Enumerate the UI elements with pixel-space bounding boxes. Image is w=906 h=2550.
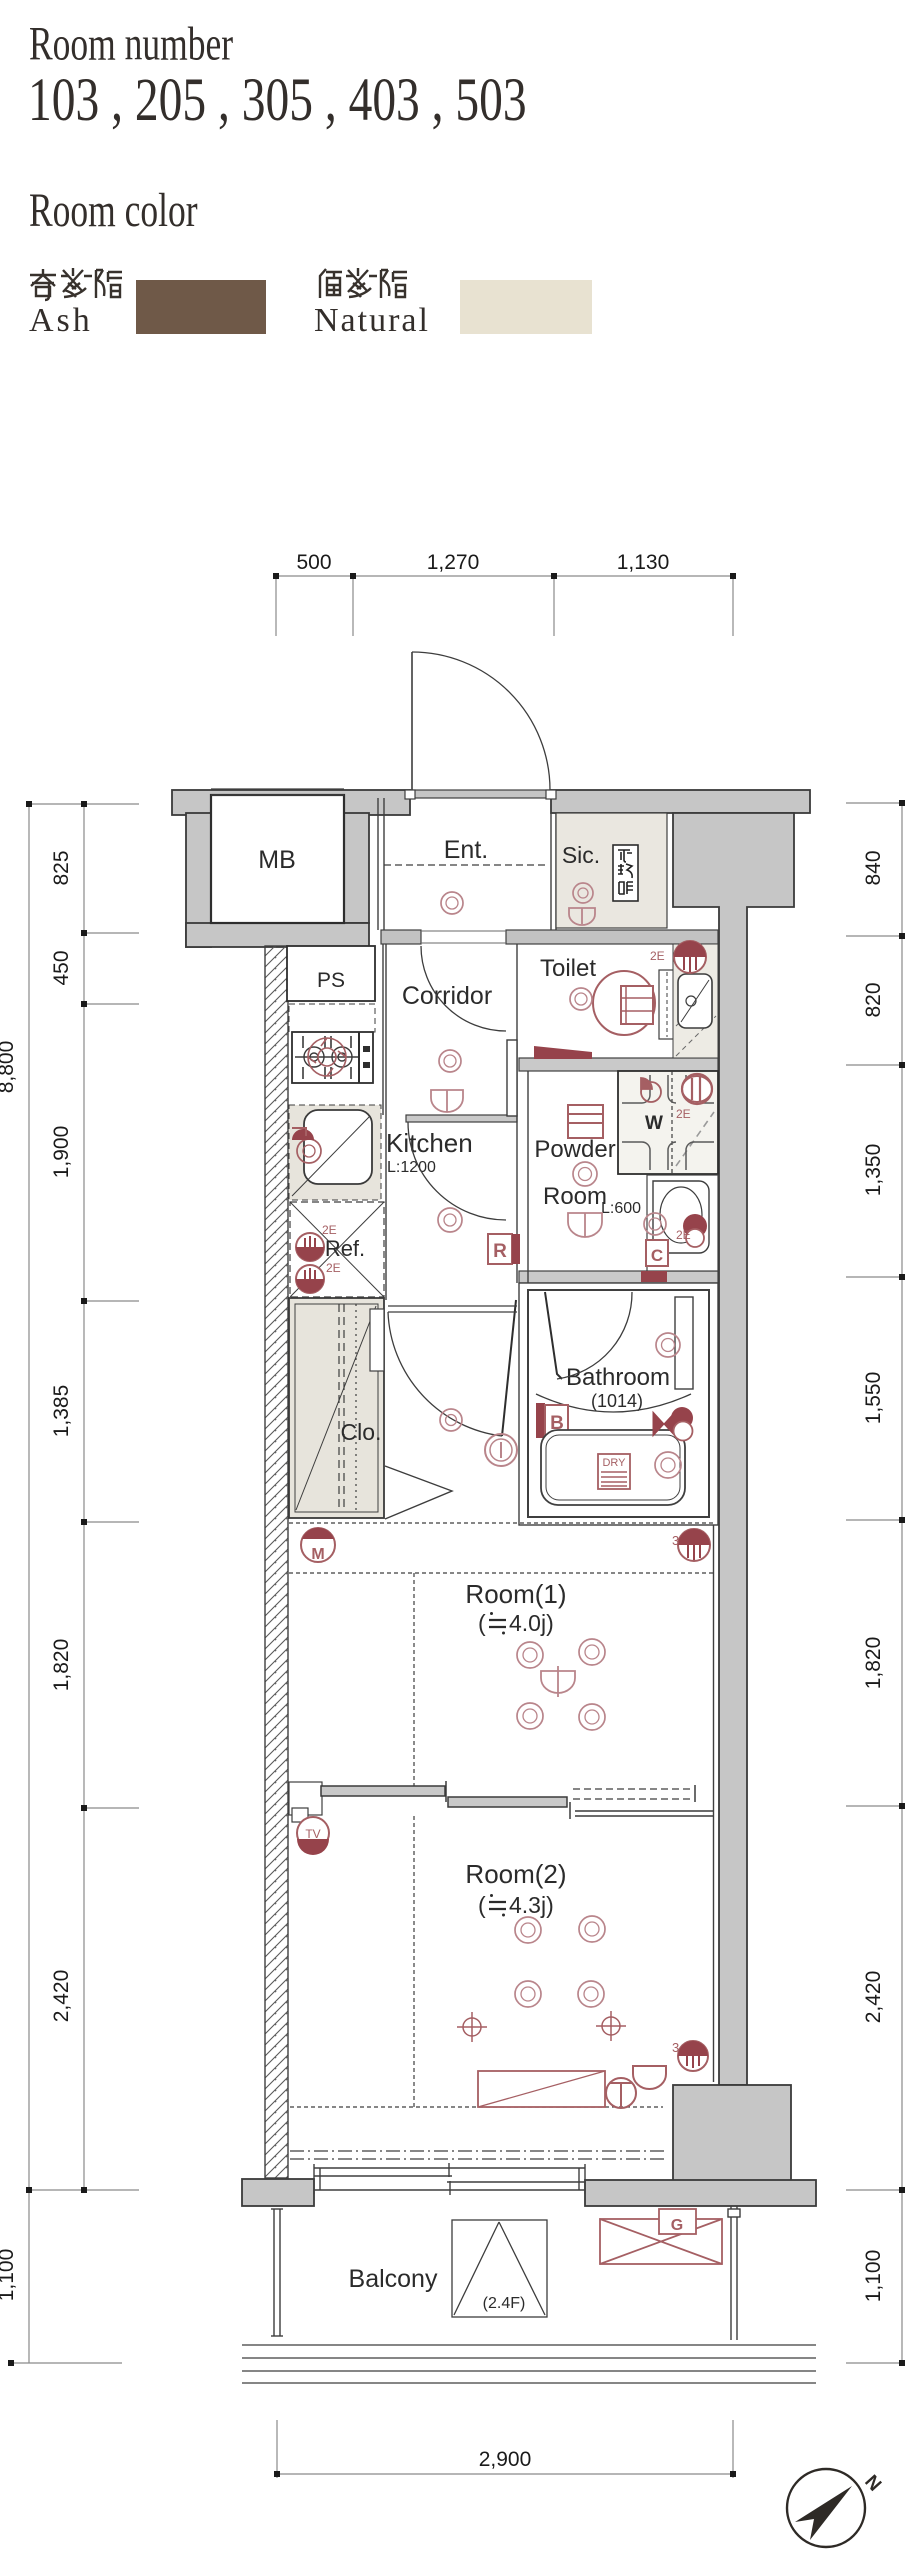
svg-text:500: 500	[296, 551, 331, 574]
svg-text:2E: 2E	[326, 1261, 341, 1275]
svg-text:(1014): (1014)	[591, 1391, 643, 1411]
svg-text:PS: PS	[317, 969, 345, 992]
svg-text:1,900: 1,900	[50, 1126, 73, 1179]
svg-text:2,900: 2,900	[479, 2448, 532, 2471]
svg-text:W: W	[645, 1113, 663, 1134]
svg-text:Natural: Natural	[314, 302, 430, 339]
svg-text:TV: TV	[305, 1827, 320, 1841]
svg-text:(: (	[478, 1892, 486, 1918]
svg-text:3: 3	[672, 1533, 679, 1548]
svg-text:1,350: 1,350	[862, 1144, 885, 1197]
svg-text:R: R	[493, 1241, 507, 1262]
svg-text:4.0j): 4.0j)	[509, 1610, 554, 1636]
svg-text:L:600: L:600	[601, 1200, 641, 1217]
svg-text:3: 3	[672, 2040, 679, 2055]
svg-text:103 , 205 , 305 , 403 , 503: 103 , 205 , 305 , 403 , 503	[28, 65, 527, 133]
svg-text:4.3j): 4.3j)	[509, 1892, 554, 1918]
svg-text:825: 825	[50, 850, 73, 885]
svg-text:Powder: Powder	[534, 1136, 615, 1163]
svg-text:1,385: 1,385	[50, 1385, 73, 1438]
svg-text:840: 840	[862, 850, 885, 885]
svg-text:Ent.: Ent.	[444, 836, 488, 864]
svg-text:Kitchen: Kitchen	[386, 1128, 473, 1158]
svg-text:Room(1): Room(1)	[465, 1579, 566, 1609]
svg-text:M: M	[311, 1546, 324, 1563]
svg-text:Corridor: Corridor	[402, 982, 492, 1010]
svg-text:2E: 2E	[650, 949, 665, 963]
svg-text:(2.4F): (2.4F)	[483, 2295, 526, 2312]
svg-text:2E: 2E	[322, 1223, 337, 1237]
svg-text:Toilet: Toilet	[540, 955, 596, 982]
svg-text:L:1200: L:1200	[387, 1159, 436, 1176]
svg-text:2,420: 2,420	[862, 1971, 885, 2024]
svg-text:2E: 2E	[676, 1107, 691, 1121]
svg-text:1,130: 1,130	[617, 551, 670, 574]
svg-text:Room(2): Room(2)	[465, 1859, 566, 1889]
svg-text:1,270: 1,270	[427, 551, 480, 574]
svg-text:DRY: DRY	[602, 1457, 626, 1469]
svg-text:450: 450	[50, 950, 73, 985]
svg-text:(: (	[478, 1610, 486, 1636]
svg-text:8,800: 8,800	[0, 1041, 18, 1094]
svg-text:1,550: 1,550	[862, 1372, 885, 1425]
svg-text:C: C	[651, 1246, 663, 1265]
svg-text:1,820: 1,820	[50, 1639, 73, 1692]
svg-text:Ash: Ash	[29, 302, 93, 339]
svg-text:1,100: 1,100	[862, 2250, 885, 2303]
svg-text:Room color: Room color	[29, 184, 198, 237]
svg-text:MB: MB	[258, 846, 296, 874]
svg-text:Balcony: Balcony	[349, 2265, 438, 2293]
svg-text:Ref.: Ref.	[325, 1236, 365, 1261]
svg-text:820: 820	[862, 982, 885, 1017]
svg-text:G: G	[671, 2217, 683, 2234]
svg-text:1,100: 1,100	[0, 2249, 18, 2302]
svg-text:2,420: 2,420	[50, 1970, 73, 2023]
svg-text:1,820: 1,820	[862, 1637, 885, 1690]
svg-text:Clo.: Clo.	[341, 1419, 382, 1445]
svg-text:2E: 2E	[676, 1228, 691, 1242]
svg-text:Sic.: Sic.	[562, 842, 600, 868]
svg-text:Bathroom: Bathroom	[566, 1364, 670, 1391]
svg-text:N: N	[860, 2471, 885, 2495]
svg-text:Room: Room	[543, 1183, 607, 1210]
svg-text:Room number: Room number	[29, 17, 233, 70]
